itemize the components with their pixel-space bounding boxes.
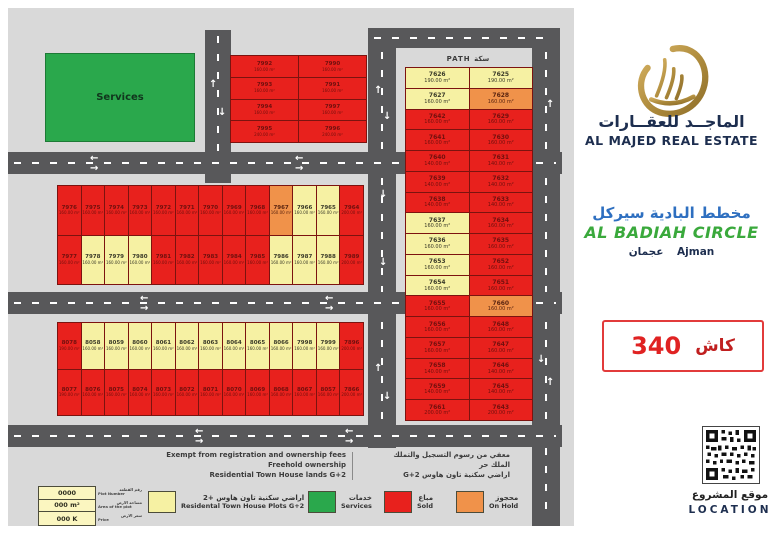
plot-8063: 8063160.00 m² (199, 323, 222, 369)
key-area: 000 m² (39, 500, 95, 513)
plot-7628: 7628160.00 m² (470, 89, 533, 109)
plot-7981: 7981160.00 m² (152, 236, 175, 285)
plot-7658: 7658140.00 m² (406, 359, 469, 379)
plot-7970: 7970160.00 m² (199, 186, 222, 235)
plot-7640: 7640140.00 m² (406, 151, 469, 171)
plot-8061: 8061160.00 m² (152, 323, 175, 369)
brand-name-arabic: الماجــد للعقــارات (575, 112, 768, 131)
note-line: اراضي سكنية تاون هاوس G+2 (360, 470, 510, 480)
plot-7979: 7979160.00 m² (105, 236, 128, 285)
key-plot-number: 0000 (39, 487, 95, 500)
cash-amount: 340 (631, 332, 681, 360)
location-label-english: LOCATION (668, 504, 768, 516)
plot-7990: 7990160.00 m² (299, 56, 366, 77)
plot-7992: 7992160.00 m² (231, 56, 298, 77)
arrow-down-icon: ↓ (383, 392, 391, 402)
plot-7968: 7968160.00 m² (246, 186, 269, 235)
plot-7646: 7646140.00 m² (470, 359, 533, 379)
almajed-logo-icon (626, 40, 716, 118)
plot-8060: 8060160.00 m² (129, 323, 152, 369)
legend-item-sold: مباع Sold (384, 491, 433, 513)
key-label-en: Plot Number (98, 492, 142, 496)
plot-7973: 7973160.00 m² (129, 186, 152, 235)
plot-block-middle: 7976160.00 m²7975160.00 m²7974160.00 m²7… (57, 185, 364, 285)
plot-7636: 7636160.00 m² (406, 234, 469, 254)
plot-8075: 8075160.00 m² (105, 370, 128, 416)
plot-8062: 8062160.00 m² (176, 323, 199, 369)
plot-7653: 7653160.00 m² (406, 255, 469, 275)
plot-7630: 7630160.00 m² (470, 130, 533, 150)
plot-8068: 8068160.00 m² (270, 370, 293, 416)
arrow-down-icon: ↓ (383, 112, 391, 122)
plot-7866: 7866200.00 m² (340, 370, 363, 416)
legend-swatch-services (308, 491, 336, 513)
legend-label-en: On Hold (489, 502, 518, 510)
arrow-right-icon: → (295, 164, 303, 174)
plot-7641: 7641160.00 m² (406, 130, 469, 150)
plot-7977: 7977160.00 m² (58, 236, 81, 285)
plot-8070: 8070160.00 m² (223, 370, 246, 416)
arrow-right-icon: → (325, 304, 333, 314)
arrow-up-icon: ↑ (546, 100, 554, 110)
legend-swatch-on-hold (456, 491, 484, 513)
city-arabic: عجمان (629, 246, 664, 258)
plot-8064: 8064160.00 m² (223, 323, 246, 369)
location-label-arabic: موقع المشروع (668, 489, 768, 501)
plot-7657: 7657160.00 m² (406, 338, 469, 358)
plot-8069: 8069160.00 m² (246, 370, 269, 416)
plot-7652: 7652160.00 m² (470, 255, 533, 275)
plot-7966: 7966160.00 m² (293, 186, 316, 235)
plot-7896: 7896200.00 m² (340, 323, 363, 369)
path-label: PATH سكة (405, 52, 531, 65)
plot-7627: 7627160.00 m² (406, 89, 469, 109)
plot-7994: 7994160.00 m² (231, 100, 298, 121)
city-english: Ajman (677, 246, 714, 258)
plot-7629: 7629160.00 m² (470, 110, 533, 130)
map-area: ↑ ↓ ← → ← → ↑ ↓ ↓ ↓ ↑ ↓ ↑ ↓ ↑ ← → ← → ← … (8, 8, 574, 526)
plot-7997: 7997160.00 m² (299, 100, 366, 121)
legend-label-ar: خدمات (341, 494, 372, 503)
plot-8078: 8078190.00 m² (58, 323, 81, 369)
arrow-up-icon: ↑ (374, 364, 382, 374)
plot-8067: 8067160.00 m² (293, 370, 316, 416)
plot-block-top: 7992160.00 m²7990160.00 m²7993160.00 m²7… (230, 55, 367, 143)
arrow-down-icon: ↓ (218, 108, 226, 118)
plot-7638: 7638140.00 m² (406, 193, 469, 213)
plot-7632: 7632140.00 m² (470, 172, 533, 192)
plot-7983: 7983160.00 m² (199, 236, 222, 285)
note-line: Freehold ownership (150, 460, 346, 470)
plot-7999: 7999160.00 m² (317, 323, 340, 369)
plot-7645: 7645140.00 m² (470, 379, 533, 399)
arrow-right-icon: → (195, 437, 203, 447)
plot-7976: 7976160.00 m² (58, 186, 81, 235)
plot-7625: 7625190.00 m² (470, 68, 533, 88)
brand-name-english: AL MAJED REAL ESTATE (575, 133, 768, 148)
note-line: Exempt from registration and ownership f… (150, 450, 346, 460)
legend-label-en: Residental Town House Plots G+2 (181, 502, 304, 510)
plot-7964: 7964200.00 m² (340, 186, 363, 235)
plot-7993: 7993160.00 m² (231, 78, 298, 99)
arrow-up-icon: ↑ (546, 378, 554, 388)
note-line: الملك حر (360, 460, 510, 470)
legend-item-services: خدمات Services (308, 491, 372, 513)
plot-7631: 7631140.00 m² (470, 151, 533, 171)
arrow-up-icon: ↑ (374, 86, 382, 96)
plot-7660: 7660160.00 m² (470, 296, 533, 316)
plot-7639: 7639140.00 m² (406, 172, 469, 192)
plot-7642: 7642160.00 m² (406, 110, 469, 130)
plot-7974: 7974160.00 m² (105, 186, 128, 235)
plot-block-bottom: 8078190.00 m²8058160.00 m²8059160.00 m²8… (57, 322, 364, 416)
plot-7965: 7965160.00 m² (317, 186, 340, 235)
cash-word: كاش (695, 336, 735, 356)
key-label-en: Area of the plot (98, 505, 142, 509)
note-line: Residential Town House lands G+2 (150, 470, 346, 480)
plot-7985: 7985160.00 m² (246, 236, 269, 285)
plot-7987: 7987160.00 m² (293, 236, 316, 285)
plot-7634: 7634160.00 m² (470, 213, 533, 233)
services-block: Services (45, 53, 195, 142)
plot-7982: 7982160.00 m² (176, 236, 199, 285)
cash-price-box: 340 كاش (602, 320, 764, 372)
plot-7635: 7635160.00 m² (470, 234, 533, 254)
plot-map-flyer: ↑ ↓ ← → ← → ↑ ↓ ↓ ↓ ↑ ↓ ↑ ↓ ↑ ← → ← → ← … (0, 0, 768, 534)
plot-7978: 7978160.00 m² (82, 236, 105, 285)
plot-7969: 7969160.00 m² (223, 186, 246, 235)
legend-label-en: Services (341, 502, 372, 510)
arrow-up-icon: ↑ (209, 80, 217, 90)
arrow-down-icon: ↓ (537, 355, 545, 365)
legend-label-ar: اراضي سكنية تاون هاوس +2 (181, 494, 304, 503)
plot-8074: 8074160.00 m² (129, 370, 152, 416)
plot-8077: 8077190.00 m² (58, 370, 81, 416)
plot-7972: 7972160.00 m² (152, 186, 175, 235)
road-horizontal-3 (8, 425, 562, 447)
plot-7986: 7986160.00 m² (270, 236, 293, 285)
project-title-english: AL BADIAH CIRCLE (575, 223, 768, 242)
arrow-right-icon: → (90, 164, 98, 174)
legend-label-ar: مباع (417, 494, 433, 503)
key-label: رقم القطعة Plot Number (98, 485, 142, 498)
plot-7984: 7984160.00 m² (223, 236, 246, 285)
plot-7988: 7988160.00 m² (317, 236, 340, 285)
legend-swatch-residential (148, 491, 176, 513)
road-horizontal-top (368, 28, 560, 48)
arrow-right-icon: → (140, 304, 148, 314)
plot-7651: 7651160.00 m² (470, 276, 533, 296)
plot-7626: 7626190.00 m² (406, 68, 469, 88)
plot-7661: 7661200.00 m² (406, 400, 469, 420)
legend-key-card: 0000 000 m² 000 K (38, 486, 96, 526)
legend-item-on-hold: محجوز On Hold (456, 491, 518, 513)
legend-item-residential: اراضي سكنية تاون هاوس +2 Residental Town… (148, 491, 304, 513)
qr-code-icon (702, 426, 760, 484)
plot-8076: 8076160.00 m² (82, 370, 105, 416)
plot-8059: 8059160.00 m² (105, 323, 128, 369)
notes-arabic: معفي من رسوم التسجيل والتملك الملك حر ار… (360, 450, 510, 480)
arrow-right-icon: → (345, 437, 353, 447)
info-panel: الماجــد للعقــارات AL MAJED REAL ESTATE… (575, 0, 768, 534)
plot-7975: 7975160.00 m² (82, 186, 105, 235)
notes-divider (352, 452, 353, 480)
plot-7971: 7971160.00 m² (176, 186, 199, 235)
note-line: معفي من رسوم التسجيل والتملك (360, 450, 510, 460)
plot-8071: 8071160.00 m² (199, 370, 222, 416)
plot-7996: 7996240.00 m² (299, 121, 366, 142)
plot-8065: 8065160.00 m² (246, 323, 269, 369)
plot-8072: 8072160.00 m² (176, 370, 199, 416)
plot-7659: 7659140.00 m² (406, 379, 469, 399)
plot-7967: 7967160.00 m² (270, 186, 293, 235)
project-title-arabic: مخطط البادية سيركل (575, 204, 768, 222)
plot-8066: 8066160.00 m² (270, 323, 293, 369)
legend-key-labels: رقم القطعة Plot Number مساحة الارض Area … (98, 485, 142, 524)
plot-7995: 7995240.00 m² (231, 121, 298, 142)
plot-8073: 8073160.00 m² (152, 370, 175, 416)
plot-8057: 8057160.00 m² (317, 370, 340, 416)
legend-swatch-sold (384, 491, 412, 513)
plot-7637: 7637160.00 m² (406, 213, 469, 233)
key-label: سعر الارض Price (98, 511, 142, 524)
plot-7980: 7980160.00 m² (129, 236, 152, 285)
legend-label-en: Sold (417, 502, 433, 510)
key-label-en: Price (98, 518, 142, 522)
plot-7656: 7656160.00 m² (406, 317, 469, 337)
key-label: مساحة الارض Area of the plot (98, 498, 142, 511)
plot-block-right: 7626190.00 m²7625190.00 m²7627160.00 m²7… (405, 67, 533, 421)
arrow-down-icon: ↓ (379, 258, 387, 268)
plot-7647: 7647160.00 m² (470, 338, 533, 358)
plot-7654: 7654160.00 m² (406, 276, 469, 296)
plot-7989: 7989200.00 m² (340, 236, 363, 285)
plot-7643: 7643200.00 m² (470, 400, 533, 420)
legend-label-ar: محجوز (489, 494, 518, 503)
plot-7655: 7655160.00 m² (406, 296, 469, 316)
plot-7991: 7991160.00 m² (299, 78, 366, 99)
plot-7998: 7998160.00 m² (293, 323, 316, 369)
notes-english: Exempt from registration and ownership f… (150, 450, 346, 480)
arrow-down-icon: ↓ (379, 190, 387, 200)
plot-8058: 8058160.00 m² (82, 323, 105, 369)
plot-7648: 7648160.00 m² (470, 317, 533, 337)
city-label: عجمان Ajman (575, 246, 768, 258)
plot-7633: 7633140.00 m² (470, 193, 533, 213)
key-price: 000 K (39, 512, 95, 525)
